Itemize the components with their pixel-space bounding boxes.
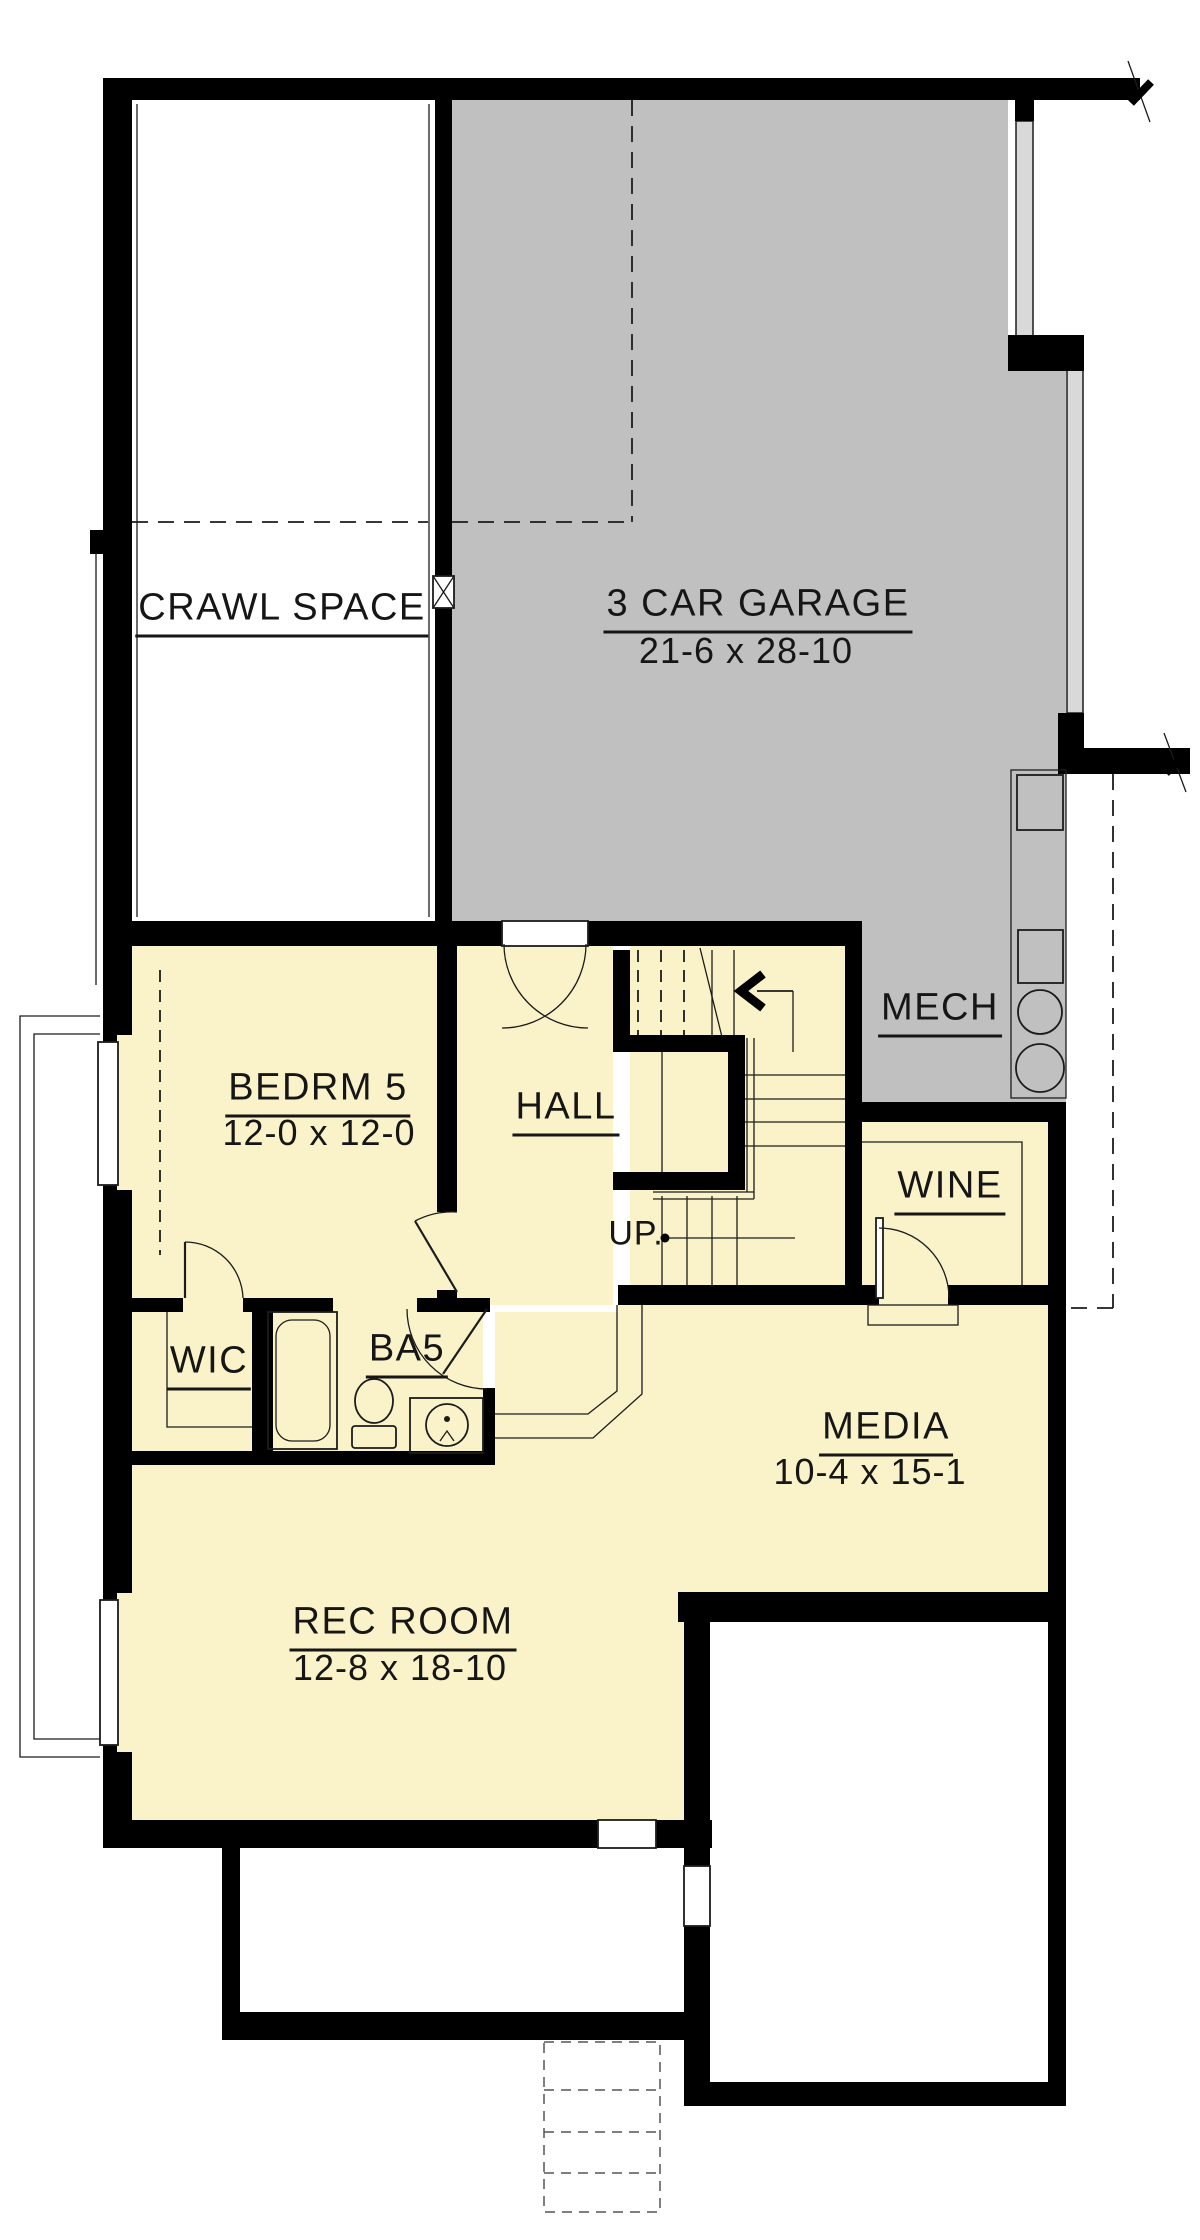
- bedroom5-window-sill: [117, 1035, 138, 1190]
- wall-garage-door-cap-bottom: [1058, 713, 1084, 749]
- bedroom5-window: [98, 1042, 118, 1185]
- wall-mid-band-east: [588, 921, 862, 946]
- wall-stair-sep-bottom: [613, 1172, 745, 1190]
- wall-wic-top-a: [132, 1298, 183, 1312]
- window-well-outer: [20, 1016, 100, 1757]
- garage-dim: 21-6 x 28-10: [639, 630, 853, 672]
- wine-label: WINE: [894, 1165, 1005, 1216]
- wall-mid-band-west: [103, 921, 502, 946]
- wall-garage-door-cap-top: [1015, 100, 1034, 121]
- wall-storage-left-b: [684, 1926, 710, 2082]
- wall-patio-bottom: [222, 2012, 710, 2040]
- floor-plan: CRAWL SPACE 3 CAR GARAGE 21-6 x 28-10 BE…: [0, 0, 1200, 2240]
- wall-media-bottom: [678, 1592, 1066, 1622]
- wine-door-gap: [879, 1285, 948, 1305]
- crawl-space-label: CRAWL SPACE: [135, 587, 428, 638]
- wall-patio-left: [222, 1848, 240, 2040]
- garage-door-track-lower: [1067, 370, 1083, 713]
- media-label: MEDIA: [819, 1406, 953, 1457]
- rec-room-dim: 12-8 x 18-10: [293, 1647, 507, 1689]
- bedroom5-label: BEDRM 5: [225, 1067, 410, 1118]
- garage-hall-door-panel: [502, 921, 588, 946]
- rec-window-sill: [117, 1593, 138, 1752]
- mech-label: MECH: [878, 987, 1002, 1038]
- wall-bath-top: [417, 1298, 490, 1312]
- stairs-up-label: UP.: [608, 1215, 663, 1254]
- media-dim: 10-4 x 15-1: [773, 1451, 966, 1493]
- wall-storage-right: [1048, 1622, 1066, 2106]
- wall-wic-bath-divider: [252, 1312, 273, 1451]
- hall-label: HALL: [512, 1086, 619, 1137]
- bath5-door-gap: [333, 1298, 417, 1312]
- wall-bedroom-hall: [437, 943, 457, 1212]
- wic-door-gap: [183, 1298, 243, 1312]
- wall-garage-door-step: [1008, 335, 1084, 371]
- wall-media-top-west: [618, 1285, 879, 1305]
- wall-stair-sep-top: [613, 1035, 745, 1052]
- wine-door-leaf: [876, 1218, 883, 1298]
- window-well-inner: [34, 1034, 100, 1739]
- wall-stair-sep-right: [728, 1052, 745, 1190]
- wall-storage-bottom: [684, 2082, 1066, 2106]
- garage-label: 3 CAR GARAGE: [603, 583, 912, 634]
- rec-window: [100, 1600, 118, 1745]
- wall-crawl-garage-divider: [435, 100, 452, 921]
- wall-left: [103, 78, 132, 1848]
- rec-patio-opening: [598, 1820, 656, 1848]
- wall-wine-media-right: [1048, 1102, 1066, 1622]
- exterior-stair-dashed: [544, 2042, 660, 2212]
- wall-top: [103, 78, 1140, 100]
- corridor-floor: [495, 1312, 618, 1465]
- wall-mech-bottom: [845, 1102, 1066, 1122]
- bedroom5-door-gap: [437, 1212, 457, 1290]
- wall-left-step: [90, 530, 103, 554]
- storage-opening: [684, 1866, 710, 1926]
- wall-rec-bottom-b: [656, 1820, 712, 1848]
- post-symbol: [433, 576, 454, 608]
- wall-rec-bottom-a: [103, 1820, 598, 1848]
- bath5-label: BA5: [366, 1328, 448, 1379]
- rec-room-label: REC ROOM: [290, 1601, 517, 1652]
- bedroom5-dim: 12-0 x 12-0: [222, 1112, 415, 1154]
- wall-wic-top-b: [243, 1298, 333, 1312]
- wic-label: WIC: [167, 1340, 251, 1391]
- garage-door-track-upper: [1016, 121, 1033, 368]
- wall-stair-left: [613, 950, 630, 1035]
